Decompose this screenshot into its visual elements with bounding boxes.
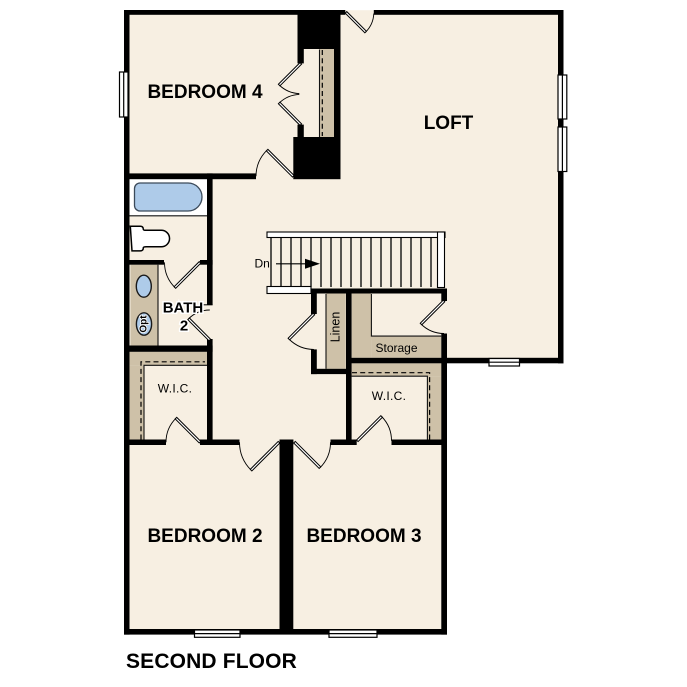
svg-text:W.I.C.: W.I.C. bbox=[372, 389, 406, 403]
svg-text:BEDROOM 4: BEDROOM 4 bbox=[147, 82, 263, 103]
svg-text:BEDROOM 3: BEDROOM 3 bbox=[306, 526, 421, 547]
svg-text:BATH: BATH bbox=[163, 300, 204, 317]
svg-text:SECOND FLOOR: SECOND FLOOR bbox=[126, 650, 297, 673]
svg-text:Dn: Dn bbox=[255, 257, 270, 271]
svg-text:Storage: Storage bbox=[375, 341, 417, 355]
svg-text:W.I.C.: W.I.C. bbox=[158, 382, 192, 396]
svg-text:Opt: Opt bbox=[139, 315, 150, 333]
svg-text:LOFT: LOFT bbox=[424, 113, 474, 134]
svg-text:2: 2 bbox=[180, 318, 188, 335]
svg-text:Linen: Linen bbox=[329, 312, 343, 343]
svg-text:BEDROOM 2: BEDROOM 2 bbox=[147, 526, 262, 547]
